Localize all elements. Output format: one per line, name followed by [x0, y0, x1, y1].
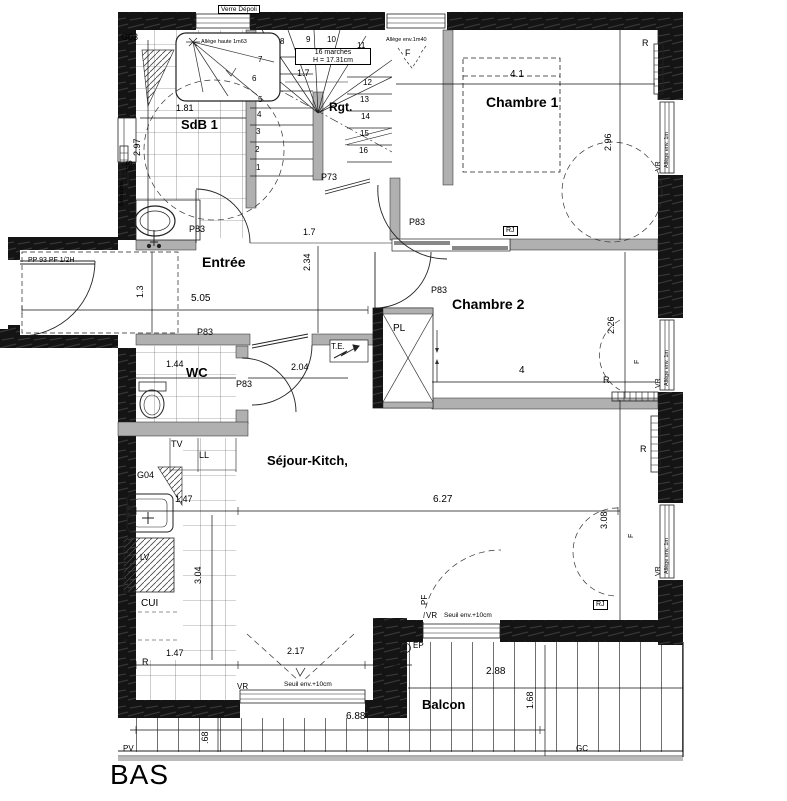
door-p83-sliding-top: P83 [409, 218, 425, 228]
stairs-note-line2: H = 17.31cm [298, 57, 368, 65]
stair-number: 15 [360, 130, 369, 139]
seuil-right: Seuil env.+10cm [444, 612, 492, 619]
seuil-left: Seuil env.+10cm [284, 681, 332, 688]
floorplan-linework [0, 0, 787, 801]
window-f-top: F [405, 49, 411, 59]
sliding-door [392, 239, 510, 251]
label-tv: TV [171, 440, 183, 450]
stair-number: 5 [258, 96, 262, 105]
stair-number: 13 [360, 96, 369, 105]
label-pf: PF [421, 595, 430, 605]
dim-c2-height: 2.26 [607, 316, 617, 334]
dim-c1-height: 2.96 [604, 133, 614, 151]
dim-kitchen-width-top: 1.47 [175, 495, 193, 505]
plan-title: BAS [110, 760, 169, 791]
radiator-sejour: R [640, 445, 647, 455]
dim-balcon-depth: .68 [201, 731, 211, 744]
vr-c1: VR [655, 161, 663, 171]
closet-pl-label: PL [393, 323, 405, 334]
vr-sejour: VR [655, 566, 663, 576]
room-balcon: Balcon [422, 698, 465, 712]
exterior-walls [0, 12, 683, 718]
dim-c1-width: 4.1 [510, 69, 524, 80]
label-lv: LV [140, 554, 149, 563]
stair-number: 1 [256, 164, 260, 173]
dim-kitchen-height: 3.04 [194, 566, 204, 584]
label-g04: G04 [137, 471, 154, 481]
label-te: T.E. [331, 343, 345, 352]
dim-balcon-width: 6.88 [346, 711, 365, 722]
label-banquette: Banquette [119, 181, 125, 206]
stair-number: 4 [257, 111, 261, 120]
room-entree: Entrée [202, 255, 246, 270]
rj-box-2: RJ [593, 600, 608, 610]
floor-plan: G03 Verre Dépoli Allège haute 1m63 16 ma… [0, 0, 787, 801]
stair-number: 12 [363, 79, 372, 88]
towel-radiator-ss: SS [126, 160, 135, 171]
dim-c2-width: 4 [519, 365, 525, 376]
dim-sdb-height: 2.97 [133, 138, 143, 156]
radiator-c1: R [642, 39, 649, 49]
dim-entree-height: 1.3 [136, 285, 146, 298]
room-sdb1: SdB 1 [181, 118, 218, 132]
allege-sejour: Allège env. 1m [664, 538, 670, 574]
room-cui: CUI [141, 598, 158, 609]
radiator-c2: R [603, 376, 610, 386]
stair-number: 8 [280, 38, 284, 47]
window-f-sejour: F [628, 534, 636, 538]
label-verre-depoli: Verre Dépoli [218, 5, 260, 14]
dim-balcon-height: 1.68 [526, 691, 536, 709]
door-p73: P73 [321, 173, 337, 183]
room-chambre1: Chambre 1 [486, 95, 558, 110]
stair-number: 14 [361, 113, 370, 122]
allege-c1: Allège env. 1m [664, 132, 670, 168]
closet-pl [373, 308, 439, 408]
radiator-kitchen: R [142, 658, 149, 668]
door-p83-entree: P83 [197, 328, 213, 338]
label-allege-1m40: Allège env.1m40 [386, 37, 427, 43]
stair-number: 11 [357, 42, 365, 51]
dim-door-sejour: 2.04 [291, 363, 309, 373]
vr-balcony-left: VR [237, 683, 248, 692]
rj-box-1: RJ [503, 226, 518, 236]
dim-kitchen-width-bottom: 1.47 [166, 649, 184, 659]
dim-stair-width: 1.7 [297, 69, 310, 79]
door-p83-sdb: P83 [189, 225, 205, 235]
dim-balcon-east: 2.88 [486, 666, 505, 677]
stair-number: 3 [256, 128, 260, 137]
dim-balcony-door: 2.17 [287, 647, 305, 657]
allege-c2: Allège env. 1m [664, 350, 670, 386]
dim-sejour-width: 6.27 [433, 494, 452, 505]
dim-wc-width: 1.44 [166, 360, 184, 370]
label-g03: G03 [121, 33, 138, 43]
label-pv: PV [123, 745, 134, 754]
room-wc: WC [186, 366, 208, 380]
stair-number: 6 [252, 75, 256, 84]
label-ll: LL [199, 451, 209, 461]
dim-sdb-width: 1.81 [176, 104, 194, 114]
dim-hall-height: 2.34 [303, 253, 313, 271]
stair-number: 9 [306, 36, 310, 45]
label-gc: GC [576, 745, 588, 754]
label-ep: EP [413, 642, 424, 651]
room-rangement: Rgt. [329, 101, 352, 114]
room-sejour: Séjour-Kitch, [267, 454, 348, 468]
stair-number: 7 [258, 56, 262, 65]
door-entry: PP 93 PF 1/2H [28, 257, 75, 265]
door-p83-wc: P83 [236, 380, 252, 390]
label-allege-haute: Allège haute 1m63 [201, 39, 247, 45]
stair-number: 16 [359, 147, 368, 156]
dim-sejour-height: 3.08 [600, 511, 610, 529]
vr-c2: VR [655, 378, 663, 388]
dim-entree-width: 5.05 [191, 293, 210, 304]
vr-balcony-right: VR [426, 612, 437, 621]
room-chambre2: Chambre 2 [452, 297, 524, 312]
stair-number: 2 [255, 146, 259, 155]
window-f-c2: F [634, 360, 642, 364]
door-p83-sliding-bottom: P83 [431, 286, 447, 296]
stair-number: 10 [327, 36, 336, 45]
dim-hall-width: 1.7 [303, 228, 316, 238]
